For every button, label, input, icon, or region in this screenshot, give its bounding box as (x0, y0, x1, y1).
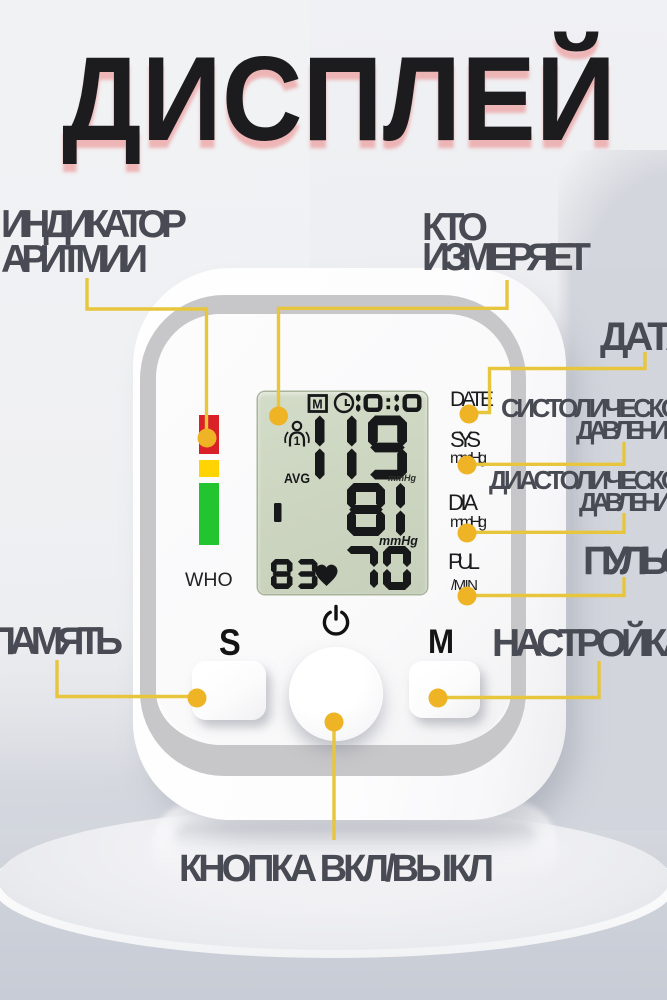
svg-text:ПАМЯТЬ: ПАМЯТЬ (0, 620, 123, 663)
svg-text:АРИТМИИ: АРИТМИИ (1, 238, 148, 281)
svg-text:КНОПКА ВКЛ/ВЫКЛ: КНОПКА ВКЛ/ВЫКЛ (179, 848, 494, 890)
svg-text:ДИСПЛЕЙ: ДИСПЛЕЙ (62, 30, 616, 166)
svg-text:ДАВЛЕНИЕ: ДАВЛЕНИЕ (579, 487, 667, 517)
svg-text:ДАВЛЕНИЕ: ДАВЛЕНИЕ (576, 415, 667, 445)
svg-text:ПУЛЬС: ПУЛЬС (583, 539, 667, 583)
svg-text:ДАТА: ДАТА (600, 315, 667, 359)
svg-text:НАСТРОЙКА: НАСТРОЙКА (492, 620, 667, 665)
svg-text:ИЗМЕРЯЕТ: ИЗМЕРЯЕТ (422, 236, 591, 279)
